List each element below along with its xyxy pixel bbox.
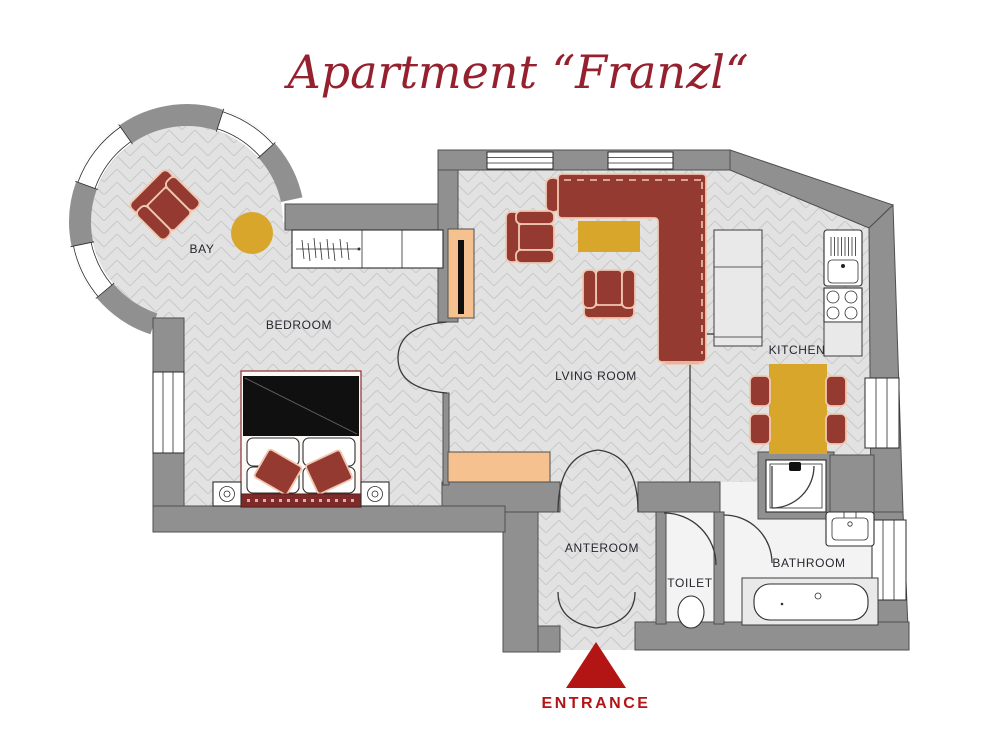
shower: [766, 460, 826, 512]
stove-burners: [824, 288, 862, 322]
stove-slot: [458, 240, 464, 314]
wall-segment: [153, 506, 505, 532]
wall-segment: [638, 482, 720, 512]
nightstand: [213, 482, 241, 506]
wall-segment: [503, 512, 538, 652]
nightstand: [361, 482, 389, 506]
living-room-window: [487, 152, 553, 169]
bathtub: [742, 578, 878, 625]
kitchen-counter: [714, 230, 762, 346]
living-room-window: [608, 152, 673, 169]
room-label-bedroom: BEDROOM: [266, 318, 332, 332]
room-label-living-room: LVING ROOM: [555, 369, 637, 383]
room-label-kitchen: KITCHEN: [769, 343, 826, 357]
toilet-wall: [656, 512, 666, 624]
dining-table: [769, 364, 827, 454]
page-title: Apartment “Franzl“: [283, 45, 748, 99]
kitchen-counter: [824, 322, 862, 356]
armchair: [583, 270, 635, 318]
washbasin: [826, 512, 874, 546]
wall-segment: [285, 204, 455, 230]
bedroom-window: [153, 372, 184, 453]
wardrobe: [292, 230, 443, 268]
wall-segment: [830, 455, 874, 519]
kitchen-sink: [824, 230, 862, 286]
room-label-bathroom: BATHROOM: [772, 556, 845, 570]
wall-segment: [438, 150, 730, 170]
coffee-table: [578, 221, 640, 252]
entrance-floor: [556, 600, 637, 650]
round-side-table: [231, 212, 273, 254]
dining-chair: [826, 376, 846, 406]
room-label-toilet: TOILET: [667, 576, 712, 590]
floor-plan: Apartment “Franzl“: [0, 0, 1000, 750]
entrance-label: ENTRANCE: [542, 695, 651, 712]
room-label-anteroom: ANTEROOM: [565, 541, 639, 555]
dining-chair: [826, 414, 846, 444]
floor-plan-page: Apartment “Franzl“: [0, 0, 1000, 750]
double-bed: [241, 371, 361, 507]
shower-head-icon: [789, 462, 801, 471]
kitchen-window: [865, 378, 899, 448]
toilet-bowl: [678, 596, 704, 628]
wall-segment: [635, 622, 909, 650]
room-label-bay: BAY: [190, 242, 215, 256]
toilet-wall: [714, 512, 724, 624]
dining-chair: [750, 376, 770, 406]
radiator: [448, 452, 550, 482]
dining-chair: [750, 414, 770, 444]
armchair: [506, 211, 554, 263]
